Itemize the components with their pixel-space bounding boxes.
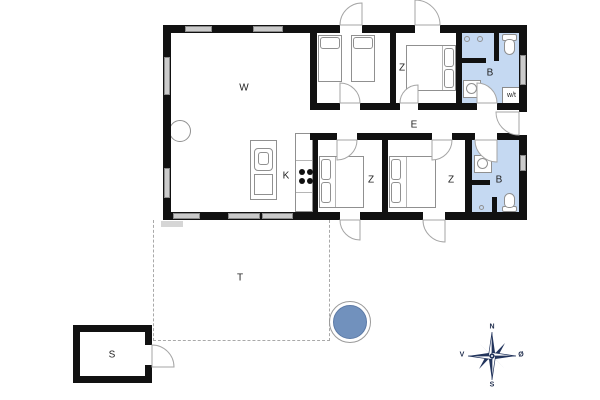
door-opening xyxy=(340,25,362,33)
room-label-z2: Z xyxy=(448,175,454,186)
shed-door-opening xyxy=(144,345,153,365)
shower-partition xyxy=(462,58,486,63)
hall-wall xyxy=(497,133,519,140)
window xyxy=(520,55,526,85)
interior-wall xyxy=(310,33,317,103)
compass-north-label: N xyxy=(489,324,494,331)
utility-label: w/t xyxy=(507,92,516,99)
stove-burner xyxy=(299,169,305,175)
window xyxy=(173,213,200,219)
room-label-bath-top: B xyxy=(487,68,494,79)
hall-wall xyxy=(452,133,475,140)
bed-pillow xyxy=(391,182,401,203)
window xyxy=(164,57,170,95)
room-label-z-top: Z xyxy=(399,63,405,74)
room-label-kitchen: K xyxy=(283,171,290,182)
room-label-living: W xyxy=(239,83,248,94)
kitchen-sink-basin xyxy=(258,152,269,165)
window xyxy=(164,168,170,198)
hall-wall xyxy=(418,103,477,110)
bed-pillow xyxy=(321,159,331,180)
washing-machine-drum xyxy=(477,158,488,169)
bed-divider xyxy=(406,157,407,207)
toilet-bowl xyxy=(504,39,515,55)
bed-pillow xyxy=(391,159,401,180)
compass-rose xyxy=(468,332,516,380)
door-opening xyxy=(423,212,445,220)
interior-wall xyxy=(382,140,388,212)
door-arc-bedroom-north xyxy=(340,3,362,25)
interior-wall xyxy=(390,33,396,103)
bath-partition xyxy=(472,180,490,185)
hall-wall xyxy=(360,103,400,110)
shower-partition xyxy=(494,33,499,61)
hall-wall xyxy=(310,103,340,110)
room-label-z1: Z xyxy=(368,175,374,186)
room-label-bath-lower: B xyxy=(496,175,503,186)
floor-plan: w/t xyxy=(0,0,600,400)
room-label-terrace: T xyxy=(237,273,243,284)
doormat xyxy=(161,221,183,227)
hot-tub-water xyxy=(333,305,367,339)
bed-divider xyxy=(442,46,443,90)
stove-burner xyxy=(299,178,305,184)
room-label-hall: E xyxy=(411,120,418,131)
door-arc-bedroom-hall xyxy=(340,83,360,103)
bed-divider xyxy=(335,157,336,207)
door-arc-zroom-north xyxy=(415,0,440,25)
kitchen-cabinet xyxy=(254,174,273,195)
bed-pillow xyxy=(444,48,454,67)
bed-pillow xyxy=(321,182,331,203)
compass-east-label: Ø xyxy=(518,352,523,359)
counter-divider xyxy=(296,160,312,161)
bed-pillow xyxy=(353,37,373,49)
bed-pillow xyxy=(444,69,454,88)
door-arc-shed xyxy=(152,345,174,367)
room-label-shed: S xyxy=(109,350,116,361)
window xyxy=(262,213,293,219)
interior-wall xyxy=(465,140,472,212)
shower-head xyxy=(477,36,483,42)
bath-partition xyxy=(492,197,497,212)
wood-stove xyxy=(169,120,191,142)
window xyxy=(520,155,526,171)
window xyxy=(253,26,283,32)
interior-wall xyxy=(313,140,318,212)
shower-head xyxy=(464,36,470,42)
hall-wall xyxy=(310,133,337,140)
compass-west-label: V xyxy=(460,352,465,359)
toilet-bowl xyxy=(504,193,515,208)
door-arc-z2-south xyxy=(423,220,445,242)
floor-drain xyxy=(479,205,484,210)
washing-machine-drum xyxy=(466,83,477,94)
door-opening xyxy=(340,212,360,220)
door-arc-entrance xyxy=(496,112,519,135)
door-opening xyxy=(415,25,440,33)
compass-south-label: S xyxy=(490,382,495,389)
hall-wall xyxy=(357,133,432,140)
door-arc-living-terrace xyxy=(340,220,360,240)
interior-wall xyxy=(456,33,462,103)
hall-wall xyxy=(497,103,519,110)
window xyxy=(228,213,260,219)
counter-divider xyxy=(296,192,312,193)
bed-pillow xyxy=(320,37,340,49)
entrance-opening xyxy=(519,112,527,135)
window xyxy=(185,26,212,32)
